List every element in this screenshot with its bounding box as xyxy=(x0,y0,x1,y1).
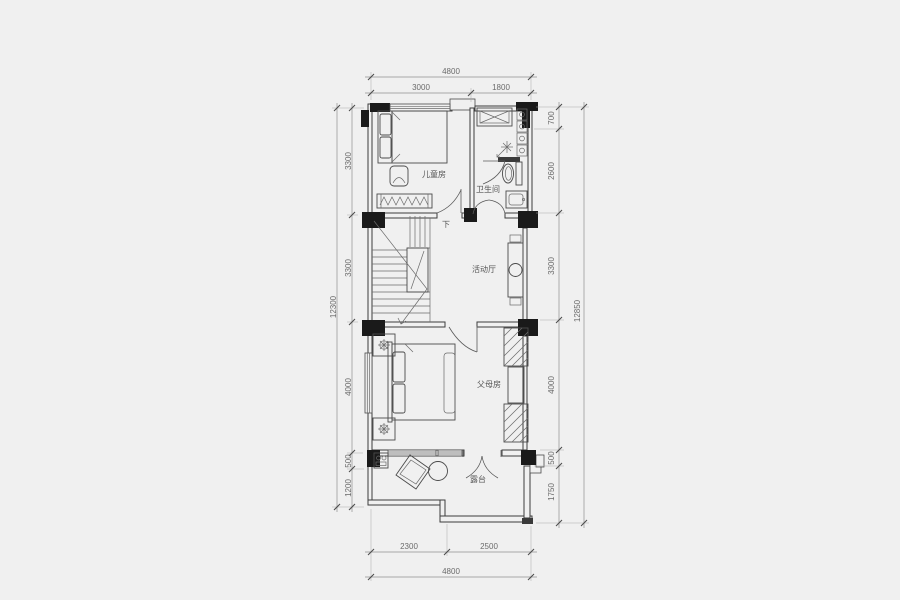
dim-left-seg: 500 xyxy=(344,454,353,468)
plan-background xyxy=(0,0,900,600)
dim-left-seg: 3300 xyxy=(344,259,353,277)
wall-hall-bottom-right xyxy=(477,322,519,327)
window-bedroom-bottom-a xyxy=(388,450,436,456)
wall-bathroom-bottom xyxy=(505,213,519,218)
stair-direction-label: 下 xyxy=(442,220,450,229)
dim-left-seg: 4000 xyxy=(344,378,353,396)
label-bathroom: 卫生间 xyxy=(476,184,500,194)
column xyxy=(522,111,530,128)
wall-terrace-left xyxy=(368,465,372,505)
dim-right-seg: 1750 xyxy=(547,483,556,501)
dim-top-seg: 1800 xyxy=(492,83,510,92)
column xyxy=(362,212,385,228)
dim-right-seg: 500 xyxy=(547,451,556,465)
window-bedroom-bottom-b xyxy=(438,450,462,456)
label-terrace: 露台 xyxy=(470,474,486,484)
dim-bottom-overall: 4800 xyxy=(442,567,460,576)
window-left-bedroom xyxy=(365,353,372,413)
column xyxy=(521,450,536,465)
dim-bottom-seg: 2300 xyxy=(400,542,418,551)
parapet-corner-block xyxy=(522,518,533,524)
wall-jog-right-2 xyxy=(536,455,544,467)
column xyxy=(464,208,477,222)
wall-right-mid xyxy=(523,228,527,320)
dim-right-seg: 2600 xyxy=(547,162,556,180)
column xyxy=(367,450,380,467)
dim-left-seg: 3300 xyxy=(344,152,353,170)
label-activity-hall: 活动厅 xyxy=(472,264,496,274)
wall-childrens-right xyxy=(470,108,474,218)
wall-bedroom-bottom-right xyxy=(502,450,522,456)
dim-right-overall: 12850 xyxy=(573,299,582,322)
label-childrens-room: 儿童房 xyxy=(422,169,446,179)
floor-plan-page: 下 xyxy=(0,0,900,600)
floor-plan-canvas: 下 xyxy=(0,0,900,600)
dim-right-seg: 4000 xyxy=(547,376,556,394)
dim-left-overall: 12300 xyxy=(329,295,338,318)
window-top xyxy=(390,104,450,111)
wall-terrace-right xyxy=(524,466,530,518)
dim-right-seg: 700 xyxy=(547,111,556,125)
parapet-bottom xyxy=(440,516,532,522)
dim-right-seg: 3300 xyxy=(547,257,556,275)
dim-top-seg: 3000 xyxy=(412,83,430,92)
label-parents-room: 父母房 xyxy=(477,379,501,389)
dim-bottom-seg: 2500 xyxy=(480,542,498,551)
dim-left-seg: 1200 xyxy=(344,479,353,497)
parapet-left xyxy=(368,500,445,505)
column xyxy=(518,211,538,228)
dim-top-overall: 4800 xyxy=(442,67,460,76)
column xyxy=(361,110,369,127)
